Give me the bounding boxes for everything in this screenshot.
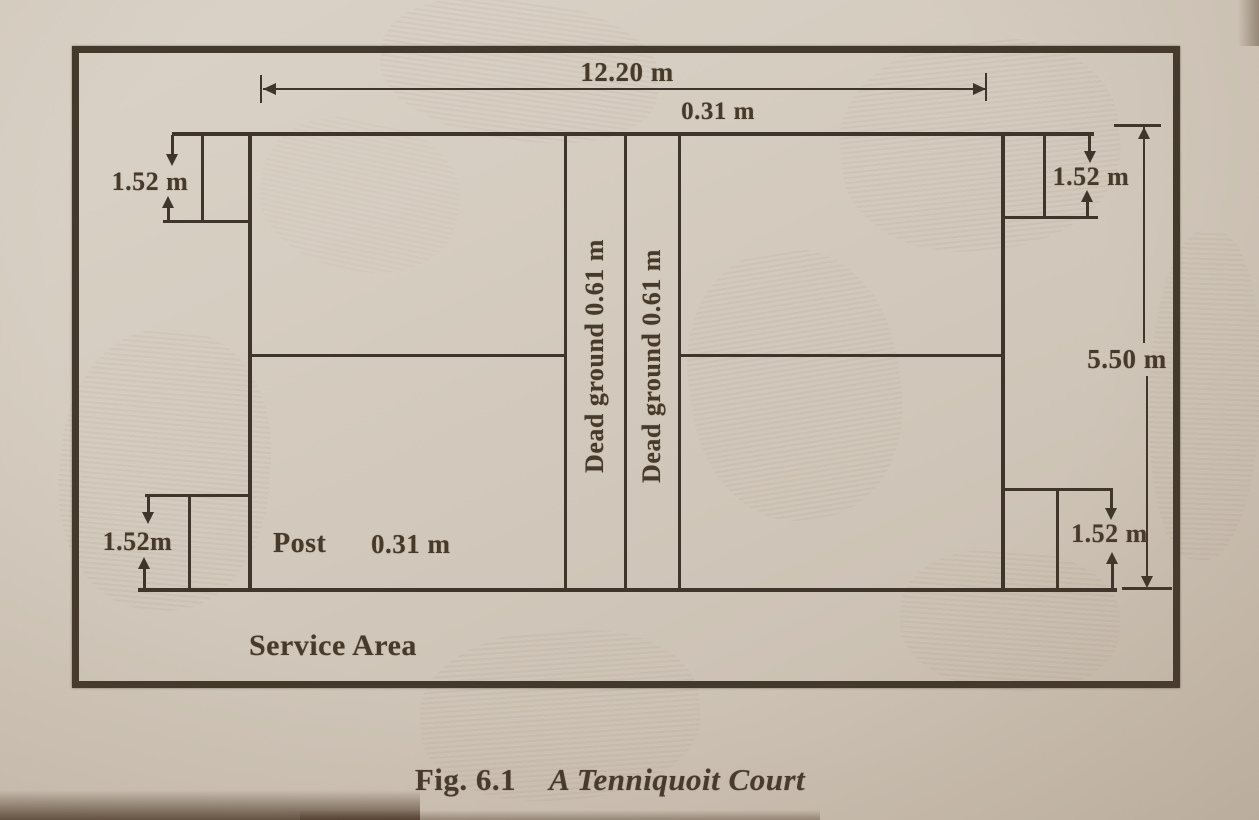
width-dimension-tick-bottom (1122, 587, 1172, 590)
corner-box-bottomleft-hline (145, 494, 252, 497)
scanned-page: 12.20 m 0.31 m 5.50 m 1.52 m 1.52 m 1.52… (0, 0, 1259, 820)
figure-caption: Fig. 6.1 A Tenniquoit Court (310, 762, 910, 798)
length-dimension-arrow-left-icon (263, 83, 276, 95)
service-line-right (681, 354, 1001, 357)
width-dimension-line-upper (1143, 127, 1145, 343)
page-edge-shadow-top-right (1238, 0, 1259, 46)
corner-tl-arrow-shaft-down (171, 135, 174, 155)
dead-ground-left-label: Dead ground 0.61 m (580, 216, 610, 496)
corner-br-arrow-shaft-up (1111, 562, 1114, 590)
court-bottom-sideline (138, 588, 1117, 592)
corner-tr-arrow-up-icon (1081, 190, 1093, 202)
caption-spacer (524, 762, 541, 797)
width-dimension-line-lower (1146, 376, 1148, 586)
length-dimension-line (263, 88, 986, 90)
service-area-label: Service Area (249, 629, 417, 663)
dead-ground-right-line (678, 132, 681, 592)
corner-tr-arrow-shaft-down (1088, 135, 1091, 152)
corner-tl-arrow-down-icon (166, 154, 178, 166)
corner-br-label: 1.52 m (1057, 519, 1162, 549)
corner-box-topright-hline (1001, 216, 1098, 219)
width-dimension-label: 5.50 m (1070, 344, 1184, 375)
corner-bl-label: 1.52m (89, 527, 186, 557)
page-edge-shadow-bottom (300, 810, 820, 820)
corner-box-topleft-hline (163, 220, 252, 223)
post-label: Post (273, 528, 326, 560)
corner-br-arrow-shaft-down (1110, 490, 1113, 509)
corner-bl-arrow-shaft-up (143, 567, 146, 590)
dead-ground-right-label: Dead ground 0.61 m (637, 226, 667, 506)
corner-tr-label: 1.52 m (1039, 162, 1143, 192)
net-offset-label: 0.31 m (662, 98, 774, 126)
dead-ground-left-line (564, 132, 567, 592)
post-width-label: 0.31 m (371, 529, 451, 560)
corner-br-arrow-up-icon (1106, 552, 1118, 564)
corner-tl-arrow-up-icon (162, 196, 174, 208)
corner-bl-arrow-down-icon (142, 512, 154, 524)
length-dimension-label: 12.20 m (551, 57, 703, 88)
corner-tr-arrow-shaft-up (1086, 200, 1089, 218)
court-left-endline (248, 132, 252, 592)
corner-bl-arrow-shaft-down (147, 496, 150, 513)
corner-box-topleft-vline (201, 132, 204, 223)
net-center-line (624, 132, 627, 592)
corner-box-bottomleft-vline (188, 496, 191, 591)
corner-box-bottomright-hline (1004, 488, 1113, 491)
corner-bl-arrow-up-icon (138, 557, 150, 569)
figure-caption-number: Fig. 6.1 (415, 762, 516, 797)
length-dimension-arrow-right-icon (973, 83, 986, 95)
service-line-left (252, 354, 564, 357)
court-top-sideline (172, 132, 1094, 136)
length-dimension-tick-left (260, 75, 262, 103)
court-right-endline (1001, 132, 1005, 592)
corner-tl-label: 1.52 m (99, 167, 201, 197)
figure-caption-title: A Tenniquoit Court (549, 762, 805, 797)
width-dimension-arrow-up-icon (1138, 127, 1150, 139)
